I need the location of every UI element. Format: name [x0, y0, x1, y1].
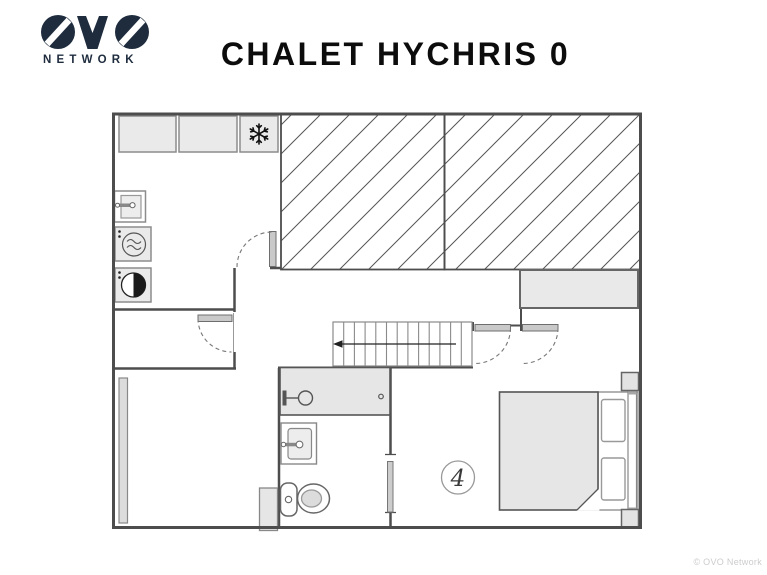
- door-leaf-bedroom: [523, 325, 559, 332]
- open-door-panel: [260, 488, 278, 531]
- door-leaf-bathroom: [388, 462, 394, 513]
- bathroom-sink: [281, 423, 317, 464]
- kitchen-counter-2: [179, 116, 237, 152]
- bed-duvet: [500, 392, 599, 510]
- shower-fixture-icon: [283, 391, 287, 406]
- door-arc-bedroom: [523, 328, 559, 364]
- sloped-ceiling-hatch-left: [281, 114, 445, 270]
- wall-door-stub-middle: [511, 308, 522, 331]
- bottom-left-room: [119, 378, 278, 531]
- kitchen-counter-1: [119, 116, 176, 152]
- staircase: [333, 322, 472, 366]
- washing-machine: [115, 268, 151, 302]
- shower-drain-icon: [379, 394, 384, 399]
- pillow: [602, 400, 626, 442]
- laundry-room: [115, 116, 279, 302]
- copyright-text: © OVO Network: [693, 557, 762, 567]
- sideboard: [520, 270, 638, 308]
- pillow: [602, 458, 626, 500]
- door-leaf-hall: [475, 325, 511, 332]
- door-leaf-laundry: [270, 232, 277, 267]
- sloped-ceiling-hatch-right: [445, 114, 642, 270]
- floor-plan: 4: [0, 0, 767, 575]
- room-number: 4: [450, 466, 466, 492]
- bedroom: 4: [442, 270, 639, 528]
- bedside-table: [622, 510, 639, 528]
- laundry-sink: [115, 191, 146, 222]
- faucet-bar: [120, 204, 131, 208]
- bathroom: [280, 368, 390, 517]
- floor-plan-page: { "brand": { "logo": "OVO", "network": "…: [0, 0, 767, 575]
- headboard: [628, 389, 637, 513]
- door-arc-hall: [475, 328, 511, 364]
- tumble-dryer: [115, 227, 151, 261]
- bedside-table: [622, 373, 639, 391]
- room-number-badge: 4: [442, 461, 475, 494]
- flush-button-icon: [285, 496, 291, 502]
- faucet-bar: [286, 443, 298, 447]
- door-arc-corridor: [198, 319, 232, 353]
- shower: [280, 368, 390, 416]
- toilet: [281, 483, 330, 516]
- door-leaf-corridor: [198, 315, 232, 322]
- door-arc-laundry: [237, 232, 272, 267]
- double-bed: [500, 389, 639, 513]
- window-bar: [119, 378, 128, 523]
- sloped-ceiling-hatch: [281, 114, 641, 270]
